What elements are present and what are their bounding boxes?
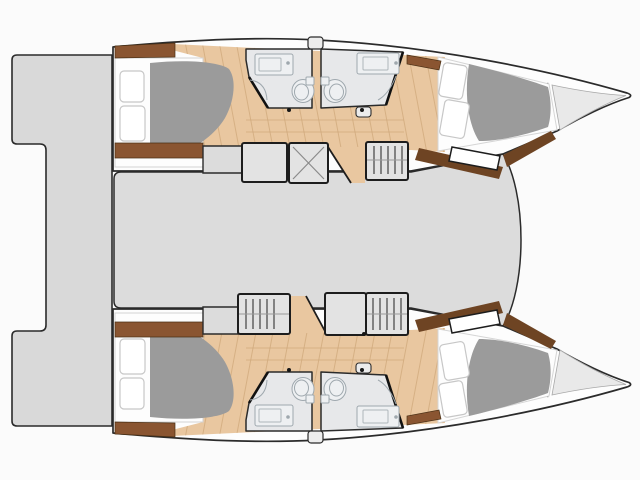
door-hinge-dot [360, 108, 364, 112]
storage-unit [325, 293, 366, 335]
deck-notch [203, 146, 242, 173]
faucet-icon [394, 61, 398, 65]
toilet-tank [321, 77, 329, 85]
pillow [438, 62, 468, 100]
door-threshold [356, 107, 371, 117]
catamaran-floor-plan: Catamaran interior layout plan — overhea… [0, 0, 640, 480]
pillow [120, 71, 144, 102]
head-shelf [115, 43, 175, 58]
mast-fitting [308, 37, 323, 49]
deck-notch [203, 307, 238, 334]
door-hinge-dot [362, 332, 366, 336]
door-hinge-dot [287, 108, 291, 112]
faucet-icon [286, 61, 290, 65]
pillow [120, 106, 145, 141]
storage-unit [242, 143, 287, 182]
pillow [439, 99, 470, 139]
floor-plan-canvas: Catamaran interior layout plan — overhea… [0, 0, 640, 480]
foot-cabinet [115, 143, 203, 158]
toilet-tank [306, 77, 314, 85]
